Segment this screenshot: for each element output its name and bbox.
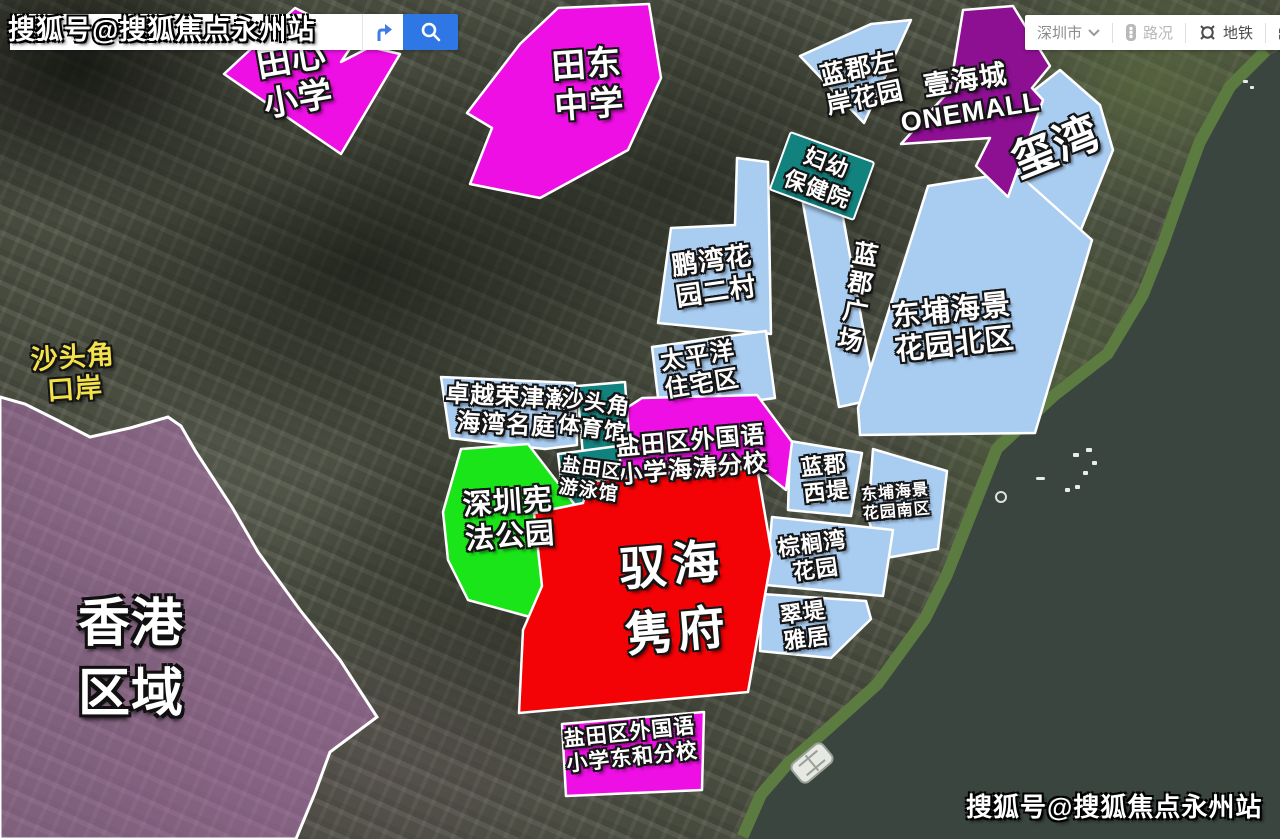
label-dongpu-north: 东埔海景花园北区 xyxy=(890,288,1017,369)
label-zhuoyue: 卓越荣津瀚海湾名庭 xyxy=(443,380,571,443)
chevron-down-icon xyxy=(1088,29,1100,37)
turn-right-arrow-icon xyxy=(371,20,395,44)
search-bar xyxy=(10,14,458,50)
label-lanjun-west: 蓝郡西堤 xyxy=(799,451,850,507)
label-tiandong-middle: 田东中学 xyxy=(550,43,625,128)
traffic-label: 路况 xyxy=(1143,22,1173,43)
city-selector[interactable]: 深圳市 xyxy=(1025,22,1112,43)
label-yantian-swim: 盐田区游泳馆 xyxy=(557,455,623,508)
label-shatoujiao-port: 沙头角口岸 xyxy=(30,339,118,408)
map-canvas[interactable]: 田心小学 田东中学 蓝郡左岸花园 壹海城ONEMALL 玺湾 妇幼保健院 鹏湾花… xyxy=(0,0,1280,839)
label-taipingyang: 太平洋住宅区 xyxy=(659,337,742,405)
label-pengwan-village: 鹏湾花园二村 xyxy=(670,240,759,312)
label-hongkong-area: 香港区域 xyxy=(78,589,184,729)
city-name: 深圳市 xyxy=(1037,22,1082,43)
directions-button[interactable] xyxy=(362,14,403,50)
traffic-toggle[interactable]: 路况 xyxy=(1113,22,1185,43)
metro-toggle[interactable]: 地铁 xyxy=(1186,22,1265,43)
metro-icon xyxy=(1198,23,1217,42)
traffic-light-icon xyxy=(1125,23,1137,42)
map-toolbar: 深圳市 路况 地铁 xyxy=(1025,15,1280,50)
label-dongpu-south: 东埔海景花园南区 xyxy=(860,481,931,525)
search-input[interactable] xyxy=(10,14,362,50)
label-xianfa-park: 深圳宪法公园 xyxy=(462,483,557,558)
hongkong-territory xyxy=(0,397,377,839)
tools-button[interactable]: 工具 xyxy=(1266,22,1280,43)
label-yuhai-mansion: 驭海隽府 xyxy=(616,528,733,668)
metro-label: 地铁 xyxy=(1223,22,1253,43)
search-icon xyxy=(419,20,443,44)
label-zonglvwan: 棕榈湾花园 xyxy=(776,526,852,587)
label-cuidi: 翠堤雅居 xyxy=(779,597,832,655)
search-button[interactable] xyxy=(403,14,458,50)
